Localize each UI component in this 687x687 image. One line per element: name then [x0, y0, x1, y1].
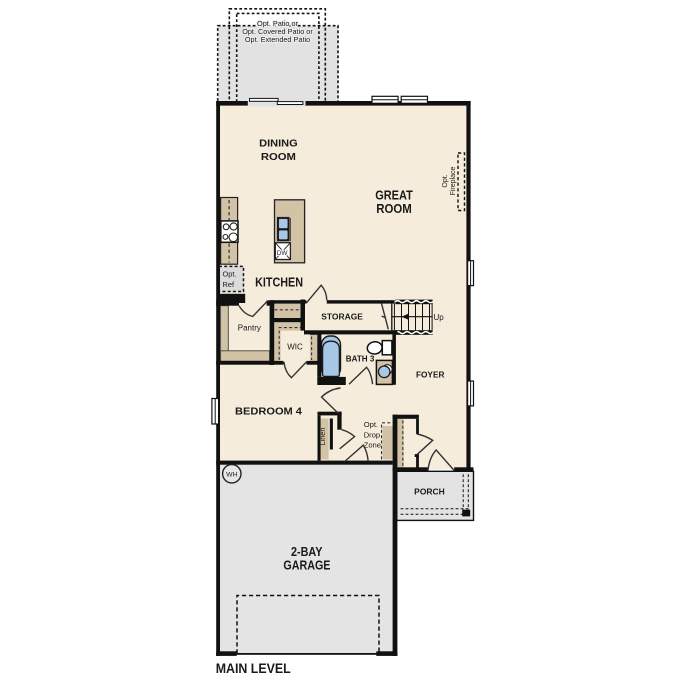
- svg-text:BATH 3: BATH 3: [346, 354, 375, 364]
- svg-text:Drop: Drop: [364, 430, 380, 439]
- svg-text:DINING: DINING: [259, 138, 298, 149]
- svg-text:Fireplace: Fireplace: [450, 167, 457, 196]
- svg-text:ROOM: ROOM: [261, 152, 296, 163]
- svg-text:Opt. Extended Patio: Opt. Extended Patio: [245, 35, 310, 44]
- svg-text:WH: WH: [226, 471, 237, 478]
- svg-text:DW: DW: [277, 250, 289, 257]
- svg-text:Opt.: Opt.: [364, 420, 378, 429]
- svg-text:GARAGE: GARAGE: [283, 557, 330, 572]
- svg-text:Zone: Zone: [364, 440, 381, 449]
- svg-text:Pantry: Pantry: [238, 324, 261, 333]
- svg-text:BEDROOM 4: BEDROOM 4: [235, 407, 302, 418]
- svg-text:PORCH: PORCH: [414, 487, 445, 497]
- svg-text:ROOM: ROOM: [376, 202, 412, 216]
- svg-text:Ref: Ref: [223, 280, 235, 289]
- svg-text:GREAT: GREAT: [375, 188, 413, 202]
- svg-text:Up: Up: [434, 313, 445, 322]
- svg-text:WIC: WIC: [287, 343, 303, 352]
- svg-text:Opt.: Opt.: [442, 174, 449, 187]
- svg-text:Opt.: Opt.: [223, 270, 237, 279]
- svg-text:FOYER: FOYER: [416, 370, 445, 380]
- svg-text:MAIN LEVEL: MAIN LEVEL: [216, 660, 291, 676]
- svg-text:STORAGE: STORAGE: [321, 311, 363, 321]
- svg-text:KITCHEN: KITCHEN: [255, 275, 303, 289]
